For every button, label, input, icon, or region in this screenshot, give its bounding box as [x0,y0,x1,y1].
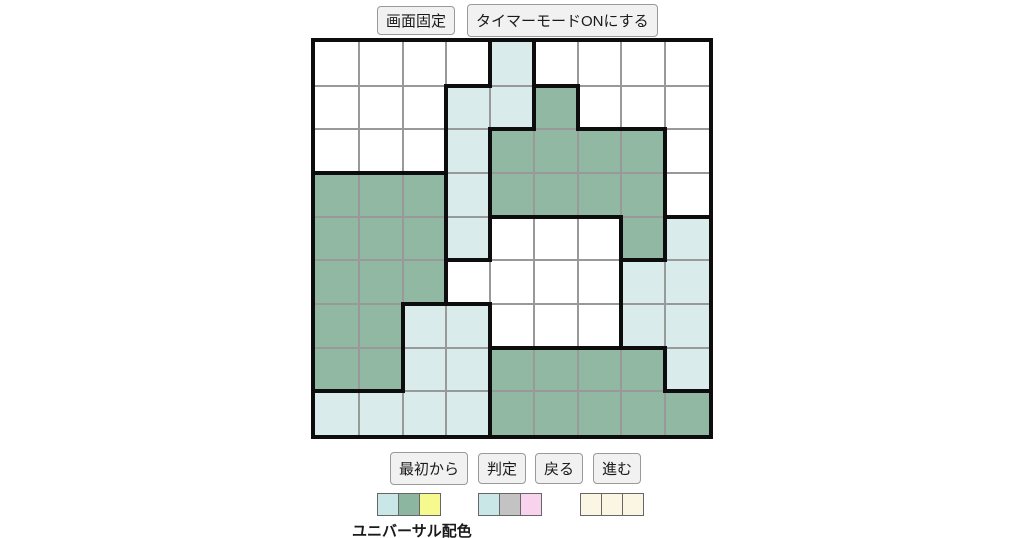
grid-cell[interactable] [578,42,622,86]
grid-cell[interactable] [315,173,359,217]
grid-cell[interactable] [359,42,403,86]
grid-cell[interactable] [534,129,578,173]
color-swatch[interactable] [478,493,500,516]
region-border [444,84,492,88]
grid-cell[interactable] [315,304,359,348]
region-border [619,215,623,263]
region-border [663,127,667,175]
palette-universal[interactable] [377,493,441,516]
region-border [619,302,623,350]
grid-cell[interactable] [403,86,447,130]
region-border [532,84,580,88]
region-border [444,258,448,306]
grid-cell[interactable] [403,348,447,392]
region-border [488,215,492,263]
grid-cell[interactable] [490,86,534,130]
region-border [576,127,624,131]
grid-cell[interactable] [665,391,709,435]
grid-cell[interactable] [315,260,359,304]
grid-cell[interactable] [621,348,665,392]
grid-cell[interactable] [446,348,490,392]
grid-cell[interactable] [403,129,447,173]
region-border [619,127,667,131]
region-border [357,389,405,393]
grid-cell[interactable] [446,86,490,130]
grid-cell[interactable] [490,42,534,86]
grid-cell[interactable] [315,217,359,261]
grid-cell[interactable] [446,129,490,173]
region-border [619,346,667,350]
color-swatch[interactable] [419,493,441,516]
region-border [663,171,667,219]
grid-cell[interactable] [403,217,447,261]
grid-cell[interactable] [534,348,578,392]
palette-plain[interactable] [580,493,644,516]
region-border [488,127,492,175]
grid-cell[interactable] [534,173,578,217]
grid-cell[interactable] [665,260,709,304]
region-border [488,215,536,219]
region-border [401,302,449,306]
grid-cell[interactable] [446,260,490,304]
grid-cell[interactable] [490,173,534,217]
grid-cell[interactable] [621,304,665,348]
grid-cell[interactable] [490,129,534,173]
region-border [444,84,448,132]
grid-cell[interactable] [446,42,490,86]
grid-cell[interactable] [490,348,534,392]
grid-cell[interactable] [665,129,709,173]
grid-cell[interactable] [315,348,359,392]
color-swatch[interactable] [622,493,644,516]
region-border [576,346,624,350]
undo-button[interactable]: 戻る [535,453,583,484]
palette-normal[interactable] [478,493,542,516]
region-border [576,84,580,132]
color-swatch[interactable] [499,493,521,516]
check-button[interactable]: 判定 [478,453,526,484]
region-border [488,346,492,394]
region-border [663,215,711,219]
puzzle-player-screen: 画面固定 タイマーモードONにする 最初から 判定 戻る 進む ユニバーサル配色 [0,0,1024,538]
grid-cell[interactable] [315,129,359,173]
grid-cell[interactable] [490,217,534,261]
grid-cell[interactable] [578,348,622,392]
region-border [444,302,492,306]
grid-cell[interactable] [359,260,403,304]
grid-cell[interactable] [490,260,534,304]
grid-cell[interactable] [578,304,622,348]
grid-cell[interactable] [359,391,403,435]
grid-cell[interactable] [315,42,359,86]
grid-cell[interactable] [359,348,403,392]
fix-screen-button[interactable]: 画面固定 [377,6,455,35]
color-swatch[interactable] [580,493,602,516]
grid-cell[interactable] [315,86,359,130]
grid-cell[interactable] [403,42,447,86]
region-border [619,258,667,262]
grid-cell[interactable] [446,173,490,217]
grid-cell[interactable] [534,260,578,304]
grid-cell[interactable] [665,348,709,392]
grid-line [358,42,360,435]
grid-cell[interactable] [446,391,490,435]
grid-cell[interactable] [403,391,447,435]
grid-cell[interactable] [578,391,622,435]
grid-cell[interactable] [534,42,578,86]
grid-cell[interactable] [621,260,665,304]
grid-cell[interactable] [621,42,665,86]
grid-cell[interactable] [578,86,622,130]
region-border [532,40,536,88]
grid-cell[interactable] [621,217,665,261]
region-border [488,127,536,131]
timer-mode-button[interactable]: タイマーモードONにする [467,4,658,37]
region-border [488,40,492,88]
region-border [663,389,711,393]
grid-cell[interactable] [359,129,403,173]
grid-line [315,303,709,305]
grid-cell[interactable] [403,304,447,348]
grid-cell[interactable] [359,86,403,130]
universal-color-scheme-label: ユニバーサル配色 [352,520,472,538]
region-border [663,346,667,394]
grid-cell[interactable] [578,129,622,173]
grid-cell[interactable] [359,173,403,217]
grid-cell[interactable] [534,391,578,435]
region-border [444,127,448,175]
grid-cell[interactable] [490,304,534,348]
region-border [444,171,448,219]
color-swatch[interactable] [398,493,420,516]
grid-cell[interactable] [534,217,578,261]
region-border [532,84,536,132]
region-border [313,389,361,393]
grid-cell[interactable] [621,391,665,435]
region-border [663,215,667,263]
grid-cell[interactable] [665,86,709,130]
grid-cell[interactable] [578,217,622,261]
region-border [532,346,580,350]
color-swatch[interactable] [520,493,542,516]
grid-cell[interactable] [490,391,534,435]
region-border [619,258,623,306]
region-border [313,171,361,175]
grid-cell[interactable] [621,129,665,173]
grid-cell[interactable] [578,173,622,217]
region-border [401,171,449,175]
region-border [444,258,492,262]
puzzle-board[interactable] [311,38,713,439]
region-border [488,171,492,219]
grid-cell[interactable] [621,173,665,217]
region-border [444,215,448,263]
region-border [488,302,492,350]
grid-cell[interactable] [665,217,709,261]
region-border [401,346,405,394]
grid-cell[interactable] [621,86,665,130]
grid-cell[interactable] [359,217,403,261]
region-border [357,171,405,175]
redo-button[interactable]: 進む [593,453,641,484]
grid-cell[interactable] [665,42,709,86]
grid-cell[interactable] [403,260,447,304]
grid-line [315,85,709,87]
grid-cell[interactable] [534,86,578,130]
restart-button[interactable]: 最初から [390,452,468,485]
grid-cell[interactable] [665,304,709,348]
grid-cell[interactable] [315,391,359,435]
region-border [401,302,405,350]
grid-cell[interactable] [446,304,490,348]
region-border [488,389,492,437]
color-swatch[interactable] [377,493,399,516]
region-border [532,215,580,219]
grid-cell[interactable] [578,260,622,304]
region-border [576,215,624,219]
grid-cell[interactable] [446,217,490,261]
grid-cell[interactable] [665,173,709,217]
region-border [488,346,536,350]
grid-cell[interactable] [403,173,447,217]
grid-cell[interactable] [359,304,403,348]
color-swatch[interactable] [601,493,623,516]
grid-cell[interactable] [534,304,578,348]
